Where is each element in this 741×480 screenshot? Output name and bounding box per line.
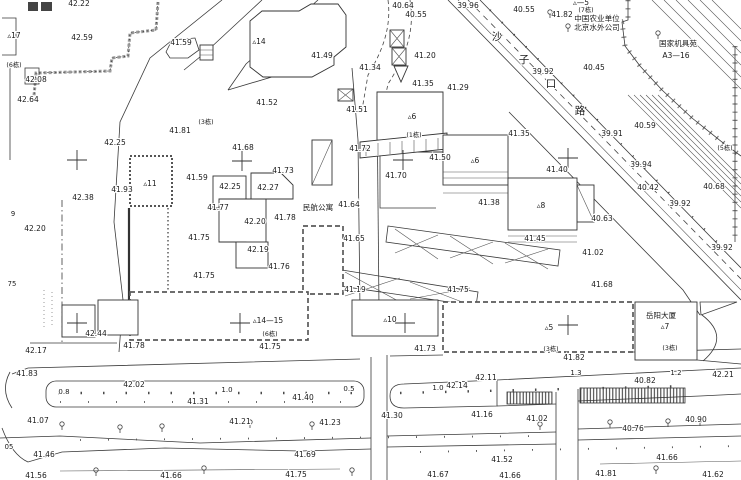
elevation-label: 41.46 xyxy=(33,450,55,459)
elevation-label: 40.68 xyxy=(703,182,725,191)
elevation-label: 41.40 xyxy=(292,393,314,402)
place-name-label: A3—16 xyxy=(662,51,689,60)
elevation-label: 39.96 xyxy=(457,1,479,10)
elevation-label: 41.02 xyxy=(526,414,548,423)
elevation-label: 41.66 xyxy=(160,471,182,480)
elevation-label: 39.91 xyxy=(601,129,623,138)
elevation-label: 41.50 xyxy=(429,153,451,162)
building-number-label: ▵—5 xyxy=(573,0,589,7)
elevation-label: 42.20 xyxy=(24,224,46,233)
elevation-label: 40.59 xyxy=(634,121,656,130)
elevation-label: 40.64 xyxy=(392,1,414,10)
elevation-label: 41.52 xyxy=(256,98,278,107)
building-count-label: (3栋) xyxy=(543,344,558,353)
elevation-label: 42.08 xyxy=(25,75,47,84)
elevation-label: 41.75 xyxy=(259,342,281,351)
elevation-label: 41.81 xyxy=(169,126,191,135)
distance-label: 1.2 xyxy=(670,369,681,377)
elevation-label: 40.76 xyxy=(622,424,644,433)
median-barrier xyxy=(580,388,685,403)
elevation-label: 40.42 xyxy=(637,183,659,192)
elevation-label: 41.40 xyxy=(546,165,568,174)
elevation-label: 41.93 xyxy=(111,185,133,194)
elevation-label: 42.20 xyxy=(244,217,266,226)
elevation-label: 41.76 xyxy=(268,262,290,271)
elevation-label: 42.19 xyxy=(247,245,269,254)
elevation-label: 41.73 xyxy=(414,344,436,353)
elevation-label: 42.14 xyxy=(446,381,468,390)
place-name-label: 北京水外公司 xyxy=(574,22,620,32)
elevation-label: 41.64 xyxy=(338,200,360,209)
building-5 xyxy=(443,302,633,352)
elevation-label: 40.45 xyxy=(583,63,605,72)
elevation-label: 42.59 xyxy=(71,33,93,42)
distance-label: 1.0 xyxy=(432,384,443,392)
building-number-label: ▵14—15 xyxy=(253,316,284,325)
building-count-label: (7栋) xyxy=(578,5,593,14)
elevation-label: 39.92 xyxy=(532,67,554,76)
elevation-label: 41.38 xyxy=(478,198,500,207)
building-count-label: (5栋) xyxy=(717,143,732,152)
elevation-label: 41.68 xyxy=(591,280,613,289)
note-label: 75 xyxy=(8,280,17,288)
elevation-label: 41.51 xyxy=(346,105,368,114)
place-name-label: 中国农业单位 xyxy=(574,13,620,23)
elevation-label: 41.70 xyxy=(385,171,407,180)
note-label: 05 xyxy=(5,443,14,451)
building-number-label: ▵11 xyxy=(143,179,157,188)
elevation-label: 41.81 xyxy=(595,469,617,478)
elevation-label: 41.73 xyxy=(272,166,294,175)
elevation-label: 41.78 xyxy=(274,213,296,222)
building-number-label: ▵5 xyxy=(545,323,554,332)
building-count-label: (1栋) xyxy=(406,130,421,139)
distance-label: 0.5 xyxy=(343,385,354,393)
elevation-label: 42.44 xyxy=(85,329,107,338)
survey-map-canvas: 42.2242.5942.0842.64▵17(6栋)41.59(3栋)41.8… xyxy=(0,0,741,480)
elevation-label: 40.90 xyxy=(685,415,707,424)
road-name-char: 路 xyxy=(575,104,586,117)
elevation-label: 40.63 xyxy=(591,214,613,223)
building-count-label: (3栋) xyxy=(198,117,213,126)
elevation-label: 42.27 xyxy=(257,183,279,192)
elevation-label: 41.23 xyxy=(319,418,341,427)
elevation-label: 39.94 xyxy=(630,160,652,169)
elevation-label: 41.49 xyxy=(311,51,333,60)
survey-map-page: 42.2242.5942.0842.64▵17(6栋)41.59(3栋)41.8… xyxy=(0,0,741,480)
road-name-char: 沙 xyxy=(492,31,503,43)
elevation-label: 42.17 xyxy=(25,346,47,355)
elevation-label: 42.25 xyxy=(104,138,126,147)
elevation-label: 41.72 xyxy=(349,144,371,153)
elevation-label: 41.59 xyxy=(170,38,192,47)
place-name-label: 国家机具苑 xyxy=(659,38,697,48)
distance-label: 1.0 xyxy=(221,386,232,394)
elevation-label: 41.30 xyxy=(381,411,403,420)
elevation-label: 41.35 xyxy=(412,79,434,88)
building-footprints xyxy=(2,2,741,364)
elevation-label: 41.77 xyxy=(207,203,229,212)
structure-block xyxy=(28,2,38,11)
tree-symbols xyxy=(60,10,702,476)
elevation-label: 41.82 xyxy=(563,353,585,362)
elevation-label: 41.66 xyxy=(656,453,678,462)
elevation-label: 41.75 xyxy=(193,271,215,280)
stair-symbol xyxy=(200,45,213,60)
elevation-label: 40.55 xyxy=(405,10,427,19)
building-number-label: ▵6 xyxy=(408,112,417,121)
elevation-label: 41.66 xyxy=(499,471,521,480)
road-name-char: 口 xyxy=(546,78,557,90)
elevation-label: 42.25 xyxy=(219,182,241,191)
elevation-label: 42.02 xyxy=(123,380,145,389)
elevation-label: 41.16 xyxy=(471,410,493,419)
building-number-label: ▵10 xyxy=(383,315,397,324)
structure-block xyxy=(41,2,52,11)
building-number-label: ▵14 xyxy=(252,37,266,46)
building-minhang-gongyu xyxy=(303,226,343,294)
elevation-label: 41.78 xyxy=(123,341,145,350)
elevation-label: 41.59 xyxy=(186,173,208,182)
building-number-label: ▵8 xyxy=(537,201,546,210)
place-name-label: 岳阳大厦 xyxy=(646,310,677,320)
elevation-label: 41.62 xyxy=(702,470,724,479)
elevation-label: 39.92 xyxy=(669,199,691,208)
building-count-label: (6栋) xyxy=(262,329,277,338)
elevation-label: 41.69 xyxy=(294,450,316,459)
elevation-label: 41.35 xyxy=(508,129,530,138)
note-label: 9 xyxy=(11,210,15,218)
distance-label: 1.3 xyxy=(570,369,581,377)
elevation-label: 42.22 xyxy=(68,0,90,8)
elevation-label: 39.92 xyxy=(711,243,733,252)
elevation-label: 41.21 xyxy=(229,417,251,426)
building-count-label: (3栋) xyxy=(662,343,677,352)
median-barrier xyxy=(507,392,552,404)
road-name-char: 子 xyxy=(519,54,530,66)
elevation-label: 42.64 xyxy=(17,95,39,104)
elevation-label: 41.31 xyxy=(187,397,209,406)
elevation-label: 42.38 xyxy=(72,193,94,202)
elevation-label: 41.19 xyxy=(344,285,366,294)
elevation-label: 40.82 xyxy=(634,376,656,385)
elevation-label: 42.21 xyxy=(712,370,734,379)
building-number-label: ▵6 xyxy=(471,156,480,165)
elevation-label: 41.45 xyxy=(524,234,546,243)
distance-label: 0.8 xyxy=(58,388,69,396)
elevation-label: 41.75 xyxy=(188,233,210,242)
elevation-label: 41.75 xyxy=(447,285,469,294)
map-labels: 42.2242.5942.0842.64▵17(6栋)41.59(3栋)41.8… xyxy=(5,0,734,480)
elevation-label: 41.07 xyxy=(27,416,49,425)
building-count-label: (6栋) xyxy=(6,60,21,69)
elevation-label: 41.68 xyxy=(232,143,254,152)
building-number-label: ▵7 xyxy=(661,322,670,331)
elevation-label: 41.34 xyxy=(359,63,381,72)
elevation-label: 41.67 xyxy=(427,470,449,479)
elevation-label: 41.75 xyxy=(285,470,307,479)
elevation-label: 41.52 xyxy=(491,455,513,464)
elevation-label: 41.20 xyxy=(414,51,436,60)
elevation-label: 41.65 xyxy=(343,234,365,243)
elevation-label: 41.82 xyxy=(551,10,573,19)
elevation-label: 42.11 xyxy=(475,373,497,382)
elevation-label: 41.56 xyxy=(25,471,47,480)
elevation-label: 41.02 xyxy=(582,248,604,257)
elevation-label: 40.55 xyxy=(513,5,535,14)
elevation-label: 41.29 xyxy=(447,83,469,92)
elevation-label: 41.83 xyxy=(16,369,38,378)
building-number-label: ▵17 xyxy=(7,31,21,40)
place-name-label: 民航公寓 xyxy=(303,202,334,212)
